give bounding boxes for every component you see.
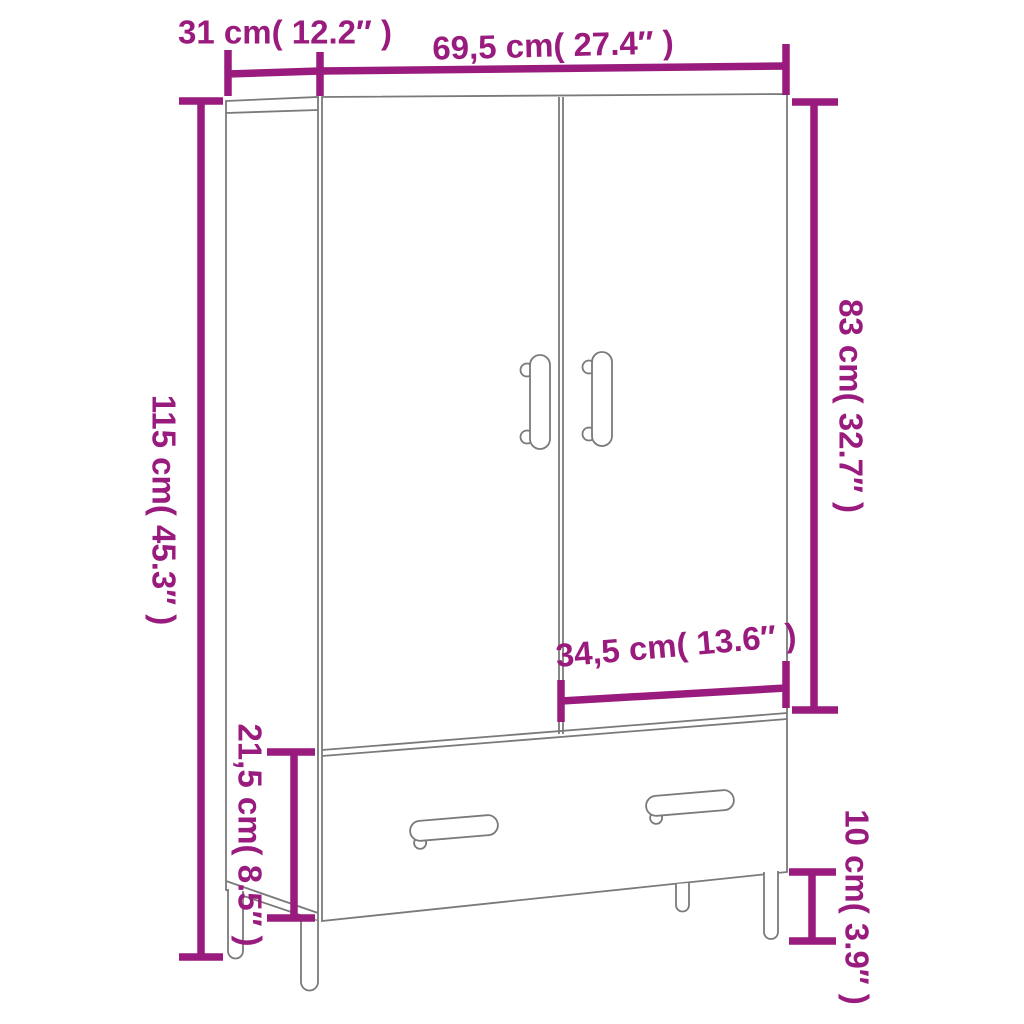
- wardrobe-drawing: [226, 94, 787, 991]
- dimension-label-leg-height: 10 cm( 3.9″ ): [839, 809, 876, 1005]
- dimension-label-width: 69,5 cm( 27.4″ ): [432, 23, 674, 66]
- dimension-label-drawer-height: 21,5 cm( 8.5″ ): [232, 723, 269, 946]
- dimension-label-height: 115 cm( 45.3″ ): [146, 395, 183, 625]
- front-left-leg: [301, 918, 318, 991]
- dimension-label-door-height: 83 cm( 32.7″ ): [833, 299, 870, 513]
- dimension-door-height: 83 cm( 32.7″ ): [792, 102, 870, 710]
- dimension-diagram: 31 cm( 12.2″ ) 69,5 cm( 27.4″ ) 115 cm( …: [0, 0, 1024, 1024]
- dimension-line: [320, 66, 786, 71]
- dimension-leg-height: 10 cm( 3.9″ ): [789, 809, 876, 1005]
- dimension-depth: 31 cm( 12.2″ ): [178, 14, 392, 97]
- handle-bar: [530, 355, 550, 449]
- dimension-height: 115 cm( 45.3″ ): [146, 101, 224, 957]
- dimension-line: [228, 71, 320, 74]
- back-right-leg: [676, 883, 689, 912]
- diagram-canvas: 31 cm( 12.2″ ) 69,5 cm( 27.4″ ) 115 cm( …: [0, 0, 1024, 1024]
- front-right-leg: [764, 871, 778, 939]
- handle-bar: [592, 352, 612, 446]
- dimension-label-depth: 31 cm( 12.2″ ): [178, 14, 392, 51]
